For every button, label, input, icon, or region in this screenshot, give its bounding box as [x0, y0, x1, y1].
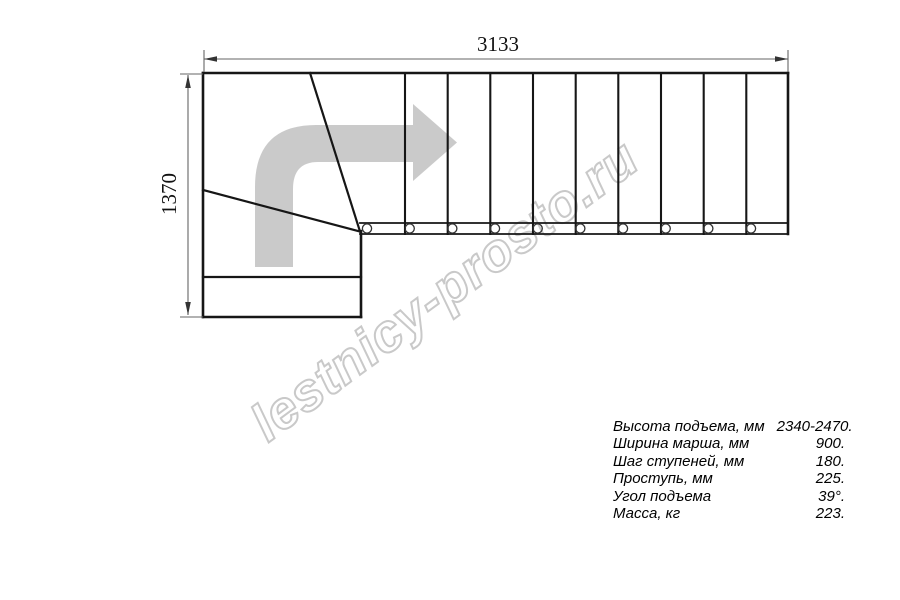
spec-label: Масса, кг — [613, 505, 680, 522]
dimension-label-length: 3133 — [477, 32, 519, 56]
arrowhead-left — [204, 56, 217, 62]
arrowhead-up — [185, 75, 191, 88]
dimension-label-width: 1370 — [157, 173, 181, 215]
spec-label: Проступь, мм — [613, 470, 713, 487]
spec-label: Высота подъема, мм — [613, 418, 765, 435]
spec-value: 39°. — [806, 488, 845, 505]
spec-label: Шаг ступеней, мм — [613, 453, 744, 470]
spec-value: 180. — [804, 453, 845, 470]
spec-row-height: Высота подъема, мм 2340-2470. — [613, 418, 845, 435]
turn-right-arrow-icon — [255, 104, 457, 267]
spec-table: Высота подъема, мм 2340-2470. Ширина мар… — [613, 418, 845, 522]
spec-value: 225. — [804, 470, 845, 487]
tread-lines — [405, 73, 746, 234]
spec-row-march-width: Ширина марша, мм 900. — [613, 435, 845, 452]
spec-label: Угол подъема — [613, 488, 711, 505]
spec-value: 223. — [804, 505, 845, 522]
spec-value: 900. — [804, 435, 845, 452]
spec-value: 2340-2470. — [765, 418, 853, 435]
arrowhead-right — [775, 56, 788, 62]
spec-row-mass: Масса, кг 223. — [613, 505, 845, 522]
spec-row-tread: Проступь, мм 225. — [613, 470, 845, 487]
spec-row-angle: Угол подъема 39°. — [613, 488, 845, 505]
arrowhead-down — [185, 302, 191, 315]
spec-row-step-pitch: Шаг ступеней, мм 180. — [613, 453, 845, 470]
watermark-text: lestnicy-prosto.ru — [240, 128, 649, 452]
spec-label: Ширина марша, мм — [613, 435, 749, 452]
staircase-drawing-page: lestnicy-prosto.ru — [0, 0, 900, 600]
